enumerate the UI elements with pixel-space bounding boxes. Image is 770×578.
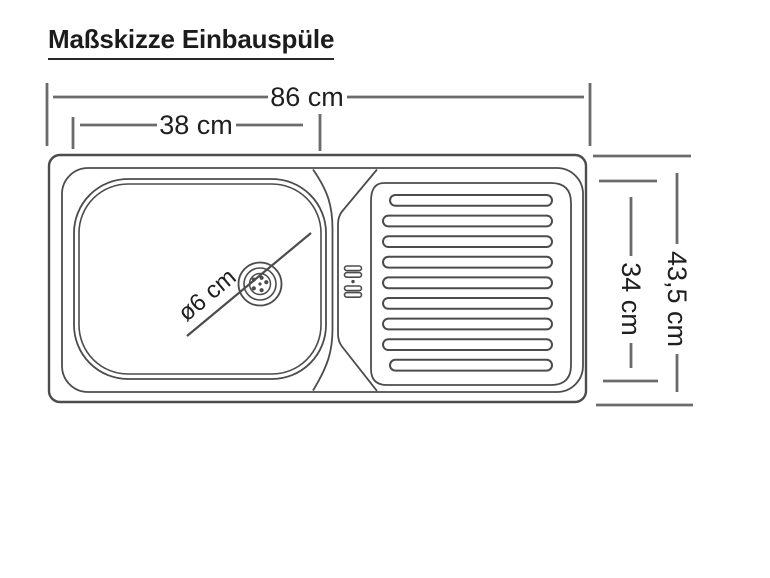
sink-dimension-drawing: 86 cm 38 cm 43,5 cm 34 cm [0,0,770,578]
basin-inner-wall [79,184,321,374]
drainer-groove [383,216,552,227]
sink-outer-edge [49,155,586,402]
drainer-groove [383,319,552,330]
drainer-boundary [371,183,571,385]
drain: ø6 cm [173,233,311,336]
inner-depth-label: 34 cm [616,262,646,336]
dimension-basin-width: 38 cm [73,110,320,151]
drain-holes [252,276,269,293]
overflow-bar [345,286,362,291]
drainer-grooves [383,195,552,371]
overflow-bar [345,273,362,278]
drainer-groove [390,360,552,371]
overall-depth-label: 43,5 cm [662,251,692,347]
basin-width-label: 38 cm [159,110,233,140]
sink-divider [313,170,377,392]
basin-outer-wall [74,179,326,379]
drainer-groove [383,277,552,288]
sink-drainer [371,183,571,385]
drainer-groove [390,195,552,206]
sink-outline [49,155,586,402]
dimension-overall-width: 86 cm [47,82,590,146]
overall-width-label: 86 cm [270,82,344,112]
drainer-groove [383,236,552,247]
overflow-bar [345,266,362,271]
dimension-sketch-page: Maßskizze Einbauspüle 86 cm 38 cm 43,5 c… [0,0,770,578]
drainer-groove [383,339,552,350]
overflow-bar [345,293,362,298]
sink-basin [74,179,326,379]
dimension-inner-depth: 34 cm [599,181,658,381]
drainer-groove [383,298,552,309]
sink-rim [62,168,583,392]
drain-diameter-label: ø6 cm [173,263,241,327]
overflow-icon [345,266,362,297]
overflow-dot [351,280,354,283]
drainer-groove [383,257,552,268]
